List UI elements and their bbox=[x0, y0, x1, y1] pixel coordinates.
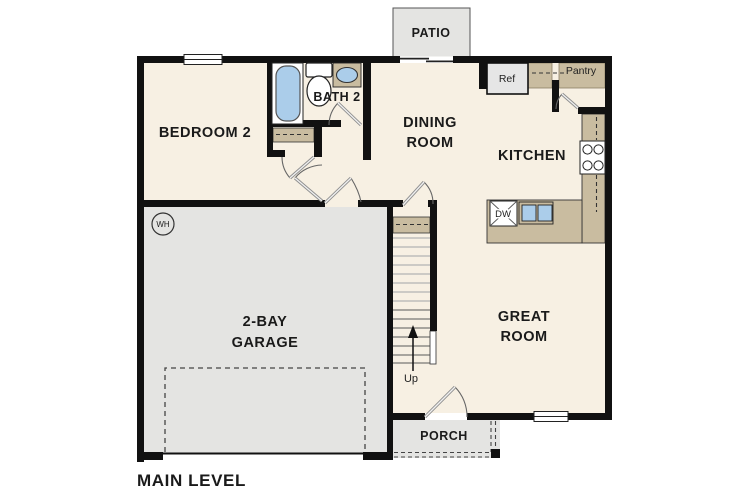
stove-icon bbox=[580, 141, 605, 174]
patio-sliding-door bbox=[400, 57, 453, 63]
room-label-porch: PORCH bbox=[420, 429, 468, 443]
floor-plan: PATIO BEDROOM 2 BATH 2 DINING ROOM KITCH… bbox=[0, 0, 750, 500]
garage-floor bbox=[144, 207, 387, 453]
stair-handrail bbox=[430, 331, 436, 364]
bathtub-icon bbox=[276, 66, 300, 121]
floor-plan-drawing: PATIO BEDROOM 2 BATH 2 DINING ROOM KITCH… bbox=[0, 0, 750, 500]
room-label-patio: PATIO bbox=[412, 26, 451, 40]
room-label-dining-2: ROOM bbox=[406, 135, 453, 151]
room-label-bath2: BATH 2 bbox=[313, 90, 360, 104]
annotation-up: Up bbox=[404, 373, 418, 385]
annotation-pantry: Pantry bbox=[566, 65, 597, 77]
kitchen-counter-right bbox=[582, 114, 605, 243]
room-label-garage-1: 2-BAY bbox=[243, 314, 288, 330]
room-label-garage-2: GARAGE bbox=[232, 335, 299, 351]
upper-cabinet bbox=[528, 63, 552, 88]
room-label-bedroom2: BEDROOM 2 bbox=[159, 125, 251, 141]
annotation-dw: DW bbox=[495, 209, 511, 220]
room-label-kitchen: KITCHEN bbox=[498, 148, 566, 164]
bedroom-window bbox=[184, 55, 222, 65]
great-room-window bbox=[534, 412, 568, 422]
room-label-great-room-2: ROOM bbox=[500, 329, 547, 345]
kitchen-sink-icon bbox=[519, 202, 553, 224]
porch-post bbox=[491, 449, 500, 458]
annotation-wh: WH bbox=[156, 220, 170, 229]
plan-title: MAIN LEVEL bbox=[137, 471, 246, 490]
room-label-great-room-1: GREAT bbox=[498, 309, 550, 325]
toilet-tank-icon bbox=[306, 63, 332, 77]
room-label-dining-1: DINING bbox=[403, 115, 457, 131]
bath-sink-icon bbox=[337, 68, 358, 83]
annotation-ref: Ref bbox=[499, 73, 515, 85]
